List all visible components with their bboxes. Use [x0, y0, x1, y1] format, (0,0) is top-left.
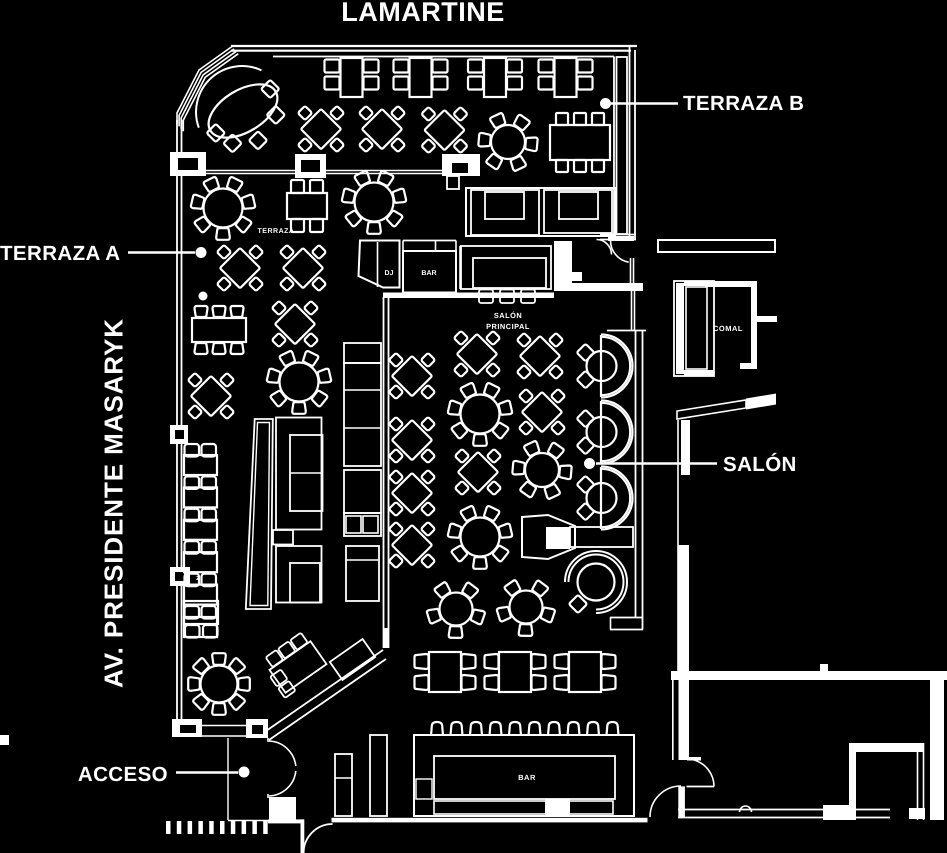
svg-text:TERRAZA: TERRAZA — [258, 228, 295, 235]
svg-text:SALÓN: SALÓN — [494, 311, 522, 320]
svg-text:AV. PRESIDENTE MASARYK: AV. PRESIDENTE MASARYK — [99, 318, 129, 688]
svg-text:BAR: BAR — [518, 773, 536, 782]
svg-text:DJ: DJ — [385, 270, 394, 277]
svg-text:ACCESO: ACCESO — [78, 763, 168, 786]
svg-text:SALÓN: SALÓN — [723, 452, 797, 476]
svg-text:TERRAZA A: TERRAZA A — [0, 242, 121, 265]
svg-text:BAR: BAR — [421, 270, 436, 277]
svg-text:PRINCIPAL: PRINCIPAL — [486, 322, 530, 331]
svg-text:TERRAZA B: TERRAZA B — [683, 92, 804, 115]
svg-text:LAMARTINE: LAMARTINE — [341, 0, 504, 27]
svg-text:COMAL: COMAL — [713, 324, 743, 333]
